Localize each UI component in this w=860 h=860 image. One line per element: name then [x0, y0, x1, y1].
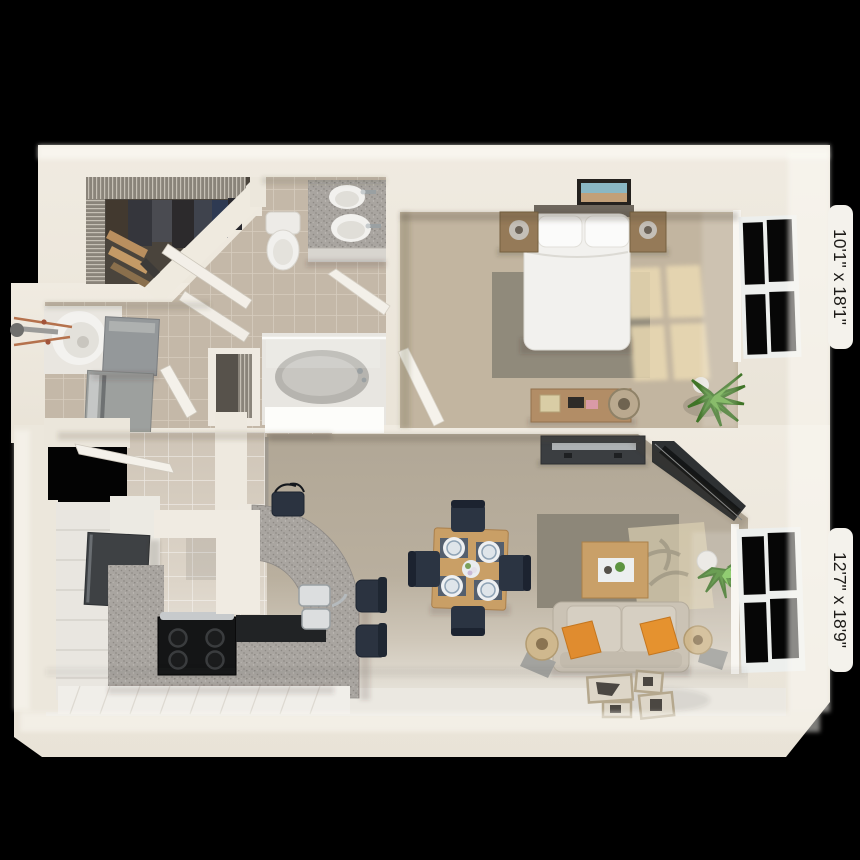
svg-text:10'1" x 18'1": 10'1" x 18'1"	[830, 229, 850, 325]
svg-text:12'7" x 18'9": 12'7" x 18'9"	[830, 552, 850, 648]
